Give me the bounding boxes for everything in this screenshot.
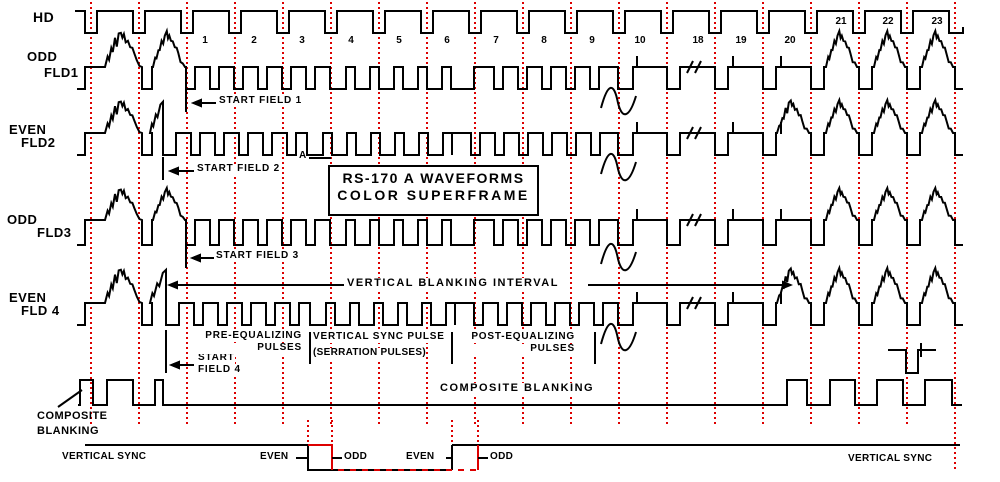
scan-line-number: 22 [876, 17, 900, 28]
scan-line-number: 6 [435, 36, 459, 47]
fld2-row-label: FLD2 [21, 136, 56, 150]
composite-blanking-label-line2: BLANKING [37, 426, 99, 438]
scan-line-number: 20 [778, 36, 802, 47]
title-box: RS-170 A WAVEFORMS COLOR SUPERFRAME [328, 165, 539, 216]
scan-line-number: 8 [532, 36, 556, 47]
fld3-type-label: ODD [7, 213, 37, 227]
pre-equalizing-label-line1: PRE-EQUALIZING [188, 331, 302, 342]
start-field-4-label-line2: FIELD 4 [198, 365, 241, 376]
title-line2: COLOR SUPERFRAME [330, 188, 537, 203]
fld1-row-label: FLD1 [44, 66, 79, 80]
start-field-4-label-line1: START [198, 353, 235, 364]
fld1-type-label: ODD [27, 50, 57, 64]
scan-line-number: 3 [290, 36, 314, 47]
waveform-canvas [0, 0, 1000, 482]
scan-line-number: 10 [628, 36, 652, 47]
vertical-sync-pulse-label-line2: (SERRATION PULSES) [313, 348, 426, 359]
scan-line-number: 9 [580, 36, 604, 47]
post-equalizing-label-line1: POST-EQUALIZING [465, 332, 575, 343]
fld3-row-label: FLD3 [37, 226, 72, 240]
composite-blanking-center-label: COMPOSITE BLANKING [440, 383, 594, 395]
scan-line-number: 19 [729, 36, 753, 47]
post-equalizing-label-line2: PULSES [465, 344, 575, 355]
hd-row-label: HD [33, 10, 54, 25]
vertical-sync-pulse-label-line1: VERTICAL SYNC PULSE [313, 332, 445, 343]
vbi-label: VERTICAL BLANKING INTERVAL [347, 278, 559, 290]
title-line1: RS-170 A WAVEFORMS [330, 171, 537, 186]
scan-line-number: 2 [242, 36, 266, 47]
odd-field-marker-2: ODD [490, 452, 513, 463]
fld4-row-label: FLD 4 [21, 304, 60, 318]
vertical-sync-left-label: VERTICAL SYNC [62, 452, 146, 463]
start-field-3-label: START FIELD 3 [216, 251, 299, 262]
scan-line-number: 21 [829, 17, 853, 28]
scan-line-number: 18 [686, 36, 710, 47]
even-field-marker-2: EVEN [406, 452, 434, 463]
vertical-sync-right-label: VERTICAL SYNC [848, 454, 932, 465]
scan-line-number: 5 [387, 36, 411, 47]
timing-diagram: HD ODD FLD1 EVEN FLD2 ODD FLD3 EVEN FLD … [0, 0, 1000, 482]
odd-field-marker-1: ODD [344, 452, 367, 463]
start-field-1-label: START FIELD 1 [219, 96, 302, 107]
scan-line-number: 4 [339, 36, 363, 47]
scan-line-number: 23 [925, 17, 949, 28]
scan-line-number: 1 [193, 36, 217, 47]
scan-line-number: 7 [484, 36, 508, 47]
even-field-marker-1: EVEN [260, 452, 288, 463]
start-field-2-label: START FIELD 2 [197, 164, 280, 175]
composite-blanking-label-line1: COMPOSITE [37, 411, 108, 423]
point-a-marker: A [299, 151, 307, 162]
pre-equalizing-label-line2: PULSES [188, 343, 302, 354]
